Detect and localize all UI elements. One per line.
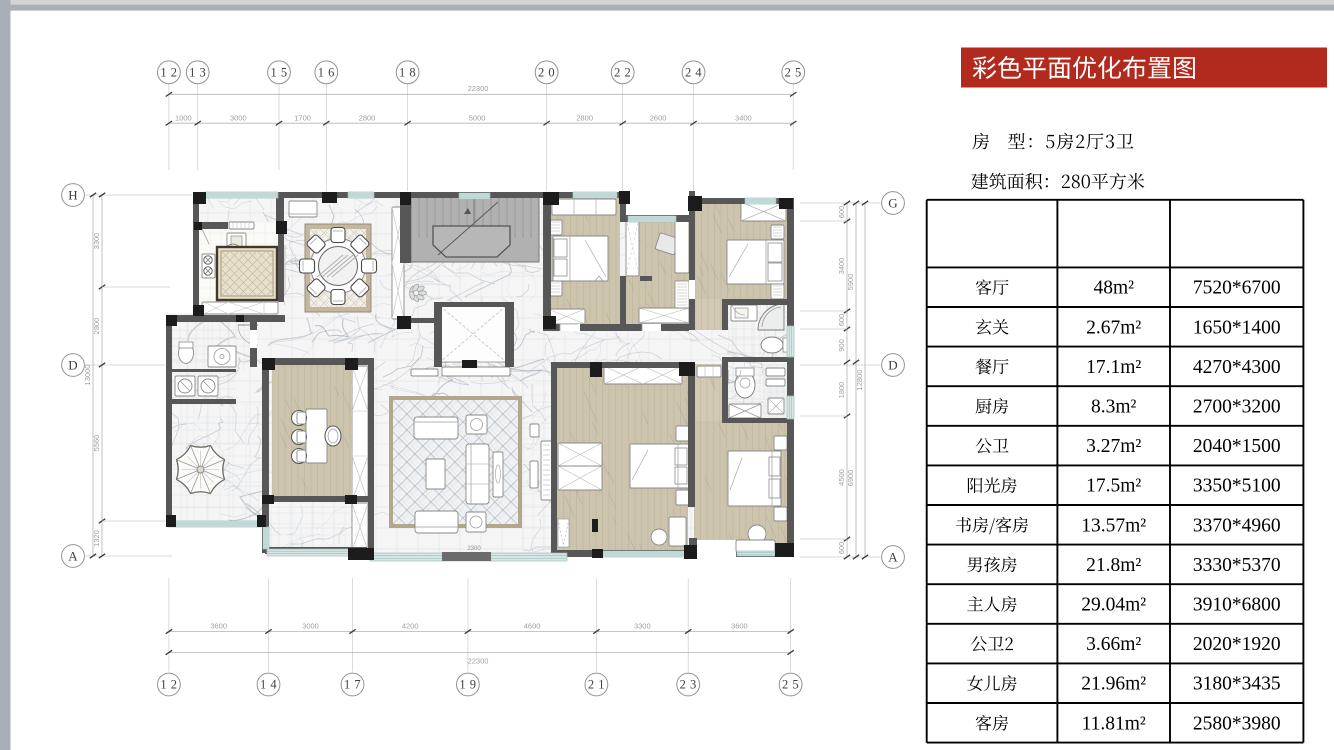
svg-text:D: D: [68, 358, 77, 373]
svg-text:3600: 3600: [210, 622, 227, 631]
svg-text:13.57m²: 13.57m²: [1081, 515, 1146, 536]
svg-text:2040*1500: 2040*1500: [1193, 436, 1281, 457]
svg-text:2 3: 2 3: [680, 678, 697, 692]
svg-text:29.04m²: 29.04m²: [1081, 595, 1146, 616]
svg-text:3600: 3600: [731, 622, 748, 631]
svg-text:2 1: 2 1: [588, 678, 605, 692]
svg-text:5560: 5560: [92, 435, 101, 452]
svg-text:2800: 2800: [359, 114, 376, 123]
svg-text:13000: 13000: [83, 365, 92, 386]
svg-text:1800: 1800: [837, 382, 846, 399]
svg-text:3400: 3400: [735, 114, 752, 123]
svg-text:1000: 1000: [175, 114, 192, 123]
svg-text:2800: 2800: [92, 318, 101, 335]
svg-text:2300: 2300: [467, 546, 481, 552]
svg-text:5000: 5000: [469, 114, 486, 123]
svg-text:1320: 1320: [92, 530, 101, 547]
svg-text:1700: 1700: [294, 114, 311, 123]
svg-text:4270*4300: 4270*4300: [1193, 357, 1281, 378]
svg-text:1650*1400: 1650*1400: [1193, 317, 1281, 338]
svg-text:3.66m²: 3.66m²: [1086, 634, 1141, 655]
svg-text:2020*1920: 2020*1920: [1193, 634, 1281, 655]
svg-text:1 3: 1 3: [189, 66, 206, 80]
svg-text:2 5: 2 5: [782, 678, 799, 692]
svg-text:11.81m²: 11.81m²: [1082, 713, 1146, 734]
svg-text:17.5m²: 17.5m²: [1086, 476, 1141, 497]
svg-text:22300: 22300: [468, 657, 489, 666]
svg-text:1 2: 1 2: [160, 678, 177, 692]
svg-text:1 2: 1 2: [160, 66, 177, 80]
svg-text:3300: 3300: [92, 233, 101, 250]
svg-text:2 2: 2 2: [614, 66, 631, 80]
svg-text:2 4: 2 4: [685, 66, 702, 80]
svg-text:600: 600: [837, 206, 846, 219]
svg-text:1 6: 1 6: [318, 66, 335, 80]
svg-text:2600: 2600: [650, 114, 667, 123]
svg-text:3350*5100: 3350*5100: [1193, 476, 1281, 497]
svg-text:12800: 12800: [855, 370, 864, 391]
svg-text:1 4: 1 4: [260, 678, 277, 692]
svg-text:3910*6800: 3910*6800: [1193, 595, 1281, 616]
svg-text:8.3m²: 8.3m²: [1091, 397, 1137, 418]
svg-text:17.1m²: 17.1m²: [1086, 357, 1141, 378]
svg-text:D: D: [888, 358, 897, 373]
svg-text:G: G: [888, 196, 897, 211]
svg-text:6900: 6900: [846, 470, 855, 487]
svg-text:A: A: [68, 549, 78, 564]
svg-text:5900: 5900: [846, 274, 855, 291]
svg-text:48m²: 48m²: [1093, 278, 1134, 299]
svg-text:A: A: [888, 550, 898, 565]
svg-text:3180*3435: 3180*3435: [1193, 674, 1281, 695]
svg-text:3.27m²: 3.27m²: [1086, 436, 1141, 457]
svg-text:2800: 2800: [576, 114, 593, 123]
svg-text:2700*3200: 2700*3200: [1193, 397, 1281, 418]
svg-text:1 5: 1 5: [270, 66, 287, 80]
svg-text:1 7: 1 7: [344, 678, 361, 692]
svg-text:600: 600: [837, 314, 846, 327]
svg-text:3300: 3300: [634, 622, 651, 631]
svg-text:1 9: 1 9: [459, 678, 476, 692]
svg-text:3000: 3000: [302, 622, 319, 631]
svg-text:2 0: 2 0: [538, 66, 555, 80]
svg-text:4600: 4600: [524, 622, 541, 631]
svg-text:H: H: [68, 188, 77, 203]
svg-text:3400: 3400: [837, 258, 846, 275]
svg-text:21.96m²: 21.96m²: [1081, 674, 1146, 695]
svg-text:900: 900: [837, 339, 846, 352]
svg-text:3000: 3000: [230, 114, 247, 123]
svg-text:2.67m²: 2.67m²: [1086, 317, 1141, 338]
svg-text:3330*5370: 3330*5370: [1193, 555, 1281, 576]
svg-text:2 5: 2 5: [785, 66, 802, 80]
svg-text:2580*3980: 2580*3980: [1193, 713, 1281, 734]
svg-text:4200: 4200: [402, 622, 419, 631]
svg-text:21.8m²: 21.8m²: [1086, 555, 1141, 576]
svg-text:3370*4960: 3370*4960: [1193, 515, 1281, 536]
svg-text:4500: 4500: [837, 469, 846, 486]
svg-text:7520*6700: 7520*6700: [1193, 278, 1281, 299]
svg-text:600: 600: [837, 542, 846, 555]
svg-text:22300: 22300: [468, 84, 489, 93]
svg-text:1 8: 1 8: [399, 66, 416, 80]
